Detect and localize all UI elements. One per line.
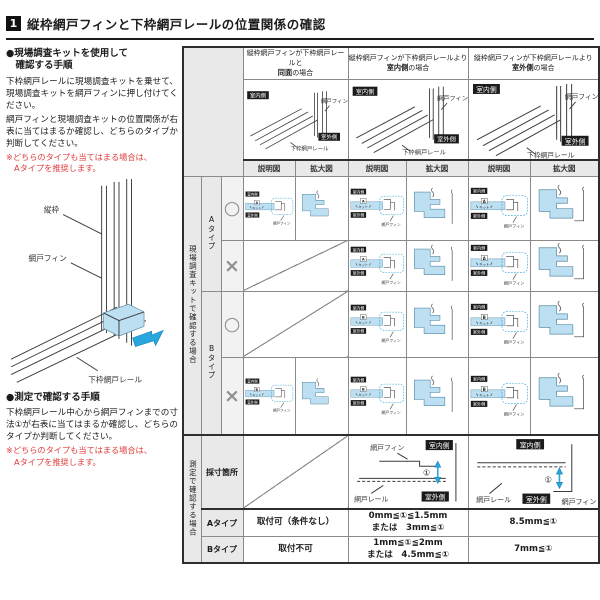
result-row-a-label: Aタイプ: [201, 509, 243, 536]
measure-diagram-outdoor: 室内側 ① 網戸レール 室外側: [468, 435, 599, 509]
kit-check-diagram: 室内側 B キット 室外側 網戸フィン: [469, 302, 530, 347]
focus-dashed-box: [379, 196, 403, 214]
svg-text:室外側: 室外側: [472, 400, 484, 406]
vertical-frame-label: 縦枠: [44, 205, 60, 215]
svg-text:室内側: 室内側: [355, 88, 374, 96]
measure-point-label: 採寸箇所: [201, 435, 243, 509]
svg-text:網戸フィン: 網戸フィン: [503, 222, 524, 228]
kit-note: ※どちらのタイプも当てはまる場合は、 Aタイプを推奨します。: [6, 152, 178, 174]
col-header-indoor: 縦枠網戸フィンが下枠網戸レールより 室内側の場合: [348, 47, 468, 79]
empty-b-ok-flush: [243, 291, 348, 357]
row-group-type-a: Aタイプ: [201, 176, 221, 291]
subheader-enlarge-1: 拡大図: [295, 160, 348, 176]
measure-note: ※どちらのタイプも当てはまる場合は、 Aタイプを推奨します。: [6, 445, 178, 467]
svg-text:網戸フィン: 網戸フィン: [436, 94, 467, 102]
kit-note-line2: Aタイプを推奨します。: [6, 163, 178, 174]
svg-text:網戸フィン: 網戸フィン: [503, 338, 524, 344]
enlarged-section-diagram: [296, 189, 348, 227]
kit-heading-line1: ●現場調査キットを使用して: [6, 48, 178, 60]
svg-text:室内側: 室内側: [472, 188, 484, 194]
push-direction-arrow: [132, 330, 163, 346]
svg-text:室外側: 室外側: [472, 329, 484, 335]
result-b-flush: 取付不可: [243, 536, 348, 563]
svg-text:網戸フィン: 網戸フィン: [381, 280, 400, 285]
svg-text:網戸フィン: 網戸フィン: [381, 338, 400, 343]
kit-check-diagram: 室内側 B キット 室外側 網戸フィン: [469, 374, 530, 419]
focus-dashed-box: [501, 196, 527, 216]
kit-check-diagram: 室内側 B キット 室外側 網戸フィン: [349, 303, 406, 345]
kit-body-1: 下枠網戸レールに現場調査キットを乗せて、現場調査キットを網戸フィンに押し付けてく…: [6, 76, 178, 112]
profile-shape: [302, 194, 328, 216]
kit-heading-line2: 確認する手順: [6, 60, 178, 72]
svg-text:下枠網戸レール: 下枠網戸レール: [290, 144, 329, 152]
kit-check-diagram: 室内側 A キット 室外側 網戸フィン: [244, 190, 295, 228]
focus-dashed-box: [379, 254, 403, 272]
svg-text:室内側: 室内側: [247, 191, 258, 196]
manual-page: 1 縦枠網戸フィンと下枠網戸レールの位置関係の確認 ●現場調査キットを使用して …: [0, 0, 600, 600]
kit-note-line1: ※どちらのタイプも当てはまる場合は、: [6, 152, 152, 162]
profile-shape: [414, 249, 445, 275]
svg-text:室外側: 室外側: [424, 493, 445, 502]
svg-text:網戸フィン: 網戸フィン: [381, 410, 400, 415]
enlarge-a-ng-indoor: [406, 240, 468, 291]
focus-dashed-box: [501, 312, 527, 332]
svg-text:室外側: 室外側: [472, 213, 484, 219]
enlarged-section-diagram: [296, 377, 348, 415]
explain-a-ok-flush: 室内側 A キット 室外側 網戸フィン: [243, 176, 295, 240]
profile-shape: [539, 306, 573, 334]
svg-text:室内側: 室内側: [352, 306, 364, 311]
svg-text:室内側: 室内側: [519, 441, 540, 450]
enlarge-a-ng-outdoor: [530, 240, 599, 291]
kit-check-diagram: 室内側 B キット 室外側 網戸フィン: [349, 375, 406, 417]
svg-text:室外側: 室外側: [352, 329, 364, 334]
subheader-explain-1: 説明図: [243, 160, 295, 176]
focus-dashed-box: [379, 312, 403, 330]
section-number-badge: 1: [6, 16, 21, 31]
measure-note-line1: ※どちらのタイプも当てはまる場合は、: [6, 445, 152, 455]
svg-text:キット: キット: [358, 321, 367, 325]
result-row-b-label: Bタイプ: [201, 536, 243, 563]
svg-text:室内側: 室内側: [472, 245, 484, 251]
svg-text:網戸フィン: 網戸フィン: [503, 410, 524, 416]
svg-text:網戸フィン: 網戸フィン: [561, 497, 596, 506]
kit-usage-diagram: 縦枠 網戸フィン: [9, 178, 175, 390]
svg-text:B: B: [361, 388, 364, 392]
svg-text:キット: キット: [479, 321, 489, 325]
profile-shape: [539, 378, 573, 406]
svg-text:下枠網戸レール: 下枠網戸レール: [527, 150, 575, 159]
empty-a-ng-flush: [243, 240, 348, 291]
svg-text:キット: キット: [479, 393, 489, 397]
ng-mark-b: ×: [221, 357, 243, 435]
svg-text:室内側: 室内側: [472, 304, 484, 310]
measure-body: 下枠網戸レール中心から網戸フィンまでの寸法①が右表に当てはまるか確認し、どちらの…: [6, 407, 178, 443]
svg-text:網戸フィン: 網戸フィン: [273, 408, 291, 413]
svg-text:室外側: 室外側: [247, 400, 258, 405]
profile-shape: [302, 382, 328, 404]
profile-shape: [539, 190, 573, 218]
table-corner-cell: [183, 47, 243, 176]
kit-check-diagram: 室内側 A キット 室外側 網戸フィン: [469, 243, 530, 288]
enlarged-section-diagram: [407, 374, 468, 419]
frame-corner-diagram: 室内側 網戸フィン 室外側 下枠網戸レール: [244, 88, 348, 152]
explain-b-ok-indoor: 室内側 B キット 室外側 網戸フィン: [348, 291, 406, 357]
svg-text:B: B: [482, 386, 485, 391]
svg-text:室外側: 室外側: [352, 213, 364, 218]
svg-text:室内側: 室内側: [472, 375, 484, 381]
section-title-bar: 1 縦枠網戸フィンと下枠網戸レールの位置関係の確認: [6, 14, 594, 40]
svg-text:キット: キット: [252, 205, 261, 209]
focus-dashed-box: [271, 385, 292, 401]
enlarged-section-diagram: [531, 299, 599, 349]
svg-text:網戸レール: 網戸レール: [354, 495, 388, 504]
kit-body-2: 網戸フィンと現場調査キットの位置関係が右表に当てはまるか確認し、どちらのタイプか…: [6, 114, 178, 150]
svg-text:①: ①: [544, 475, 551, 485]
svg-text:室内側: 室内側: [476, 85, 497, 94]
row-group-type-b: Bタイプ: [201, 291, 221, 435]
svg-text:室外側: 室外側: [525, 495, 546, 504]
explain-a-ok-outdoor: 室内側 A キット 室外側 網戸フィン: [468, 176, 530, 240]
svg-text:室内側: 室内側: [428, 441, 449, 450]
explain-b-ng-outdoor: 室内側 B キット 室外側 網戸フィン: [468, 357, 530, 435]
fin-label: 網戸フィン: [29, 253, 68, 263]
enlarged-section-diagram: [531, 183, 599, 233]
enlarge-b-ok-indoor: [406, 291, 468, 357]
enlarge-a-ok-outdoor: [530, 176, 599, 240]
focus-dashed-box: [271, 198, 292, 214]
dimension-arrow: [556, 468, 562, 489]
corner-diagram-outdoor: 室内側 網戸フィン 室外側 下枠網戸レール: [468, 79, 599, 160]
svg-text:室外側: 室外側: [352, 401, 364, 406]
svg-text:キット: キット: [358, 393, 367, 397]
enlarge-b-ng-indoor: [406, 357, 468, 435]
row-group-measure-check: 測定で確認する場合: [183, 435, 201, 563]
svg-text:B: B: [482, 315, 485, 320]
ok-mark-b: ○: [221, 291, 243, 357]
svg-text:①: ①: [423, 468, 430, 477]
subheader-enlarge-2: 拡大図: [406, 160, 468, 176]
dimension-arrow: [434, 461, 440, 483]
enlarge-b-ng-flush: [295, 357, 348, 435]
page-title: 縦枠網戸フィンと下枠網戸レールの位置関係の確認: [27, 14, 326, 33]
svg-text:室外側: 室外側: [564, 136, 585, 145]
frame-corner-diagram: 室内側 網戸フィン 室外側 下枠網戸レール: [469, 80, 599, 160]
explain-b-ng-indoor: 室内側 B キット 室外側 網戸フィン: [348, 357, 406, 435]
explain-a-ng-outdoor: 室内側 A キット 室外側 網戸フィン: [468, 240, 530, 291]
ng-mark-a: ×: [221, 240, 243, 291]
col-header-flush: 縦枠網戸フィンが下枠網戸レールと 同面の場合: [243, 47, 348, 79]
explain-b-ok-outdoor: 室内側 B キット 室外側 網戸フィン: [468, 291, 530, 357]
rail-label: 下枠網戸レール: [88, 374, 142, 384]
content-area: ●現場調査キットを使用して 確認する手順 下枠網戸レールに現場調査キットを乗せて…: [0, 40, 600, 564]
svg-text:網戸レール: 網戸レール: [476, 495, 511, 504]
kit-procedure-heading: ●現場調査キットを使用して 確認する手順: [6, 48, 178, 73]
enlarge-a-ok-indoor: [406, 176, 468, 240]
survey-kit-block: [104, 304, 144, 336]
kit-check-diagram: 室内側 A キット 室外側 網戸フィン: [349, 245, 406, 287]
svg-text:網戸フィン: 網戸フィン: [370, 443, 404, 452]
enlarged-section-diagram: [531, 371, 599, 421]
result-b-indoor: 1mm≦①≦2mm または 4.5mm≦①: [348, 536, 468, 563]
kit-check-diagram: 室内側 A キット 室外側 網戸フィン: [349, 187, 406, 229]
measure-diagram-indoor: 室内側 網戸フィン ① 網戸レール: [348, 435, 468, 509]
enlarge-a-ok-flush: [295, 176, 348, 240]
svg-text:キット: キット: [252, 393, 261, 397]
result-a-flush: 取付可（条件なし）: [243, 509, 348, 536]
svg-text:室外側: 室外側: [247, 212, 258, 217]
svg-text:室内側: 室内側: [352, 377, 364, 382]
svg-text:A: A: [255, 201, 258, 205]
svg-text:室外側: 室外側: [352, 270, 364, 275]
profile-shape: [414, 308, 445, 334]
position-check-table: 縦枠網戸フィンが下枠網戸レールと 同面の場合 縦枠網戸フィンが下枠網戸レールより…: [182, 46, 600, 564]
kit-check-diagram: 室内側 A キット 室外側 網戸フィン: [469, 186, 530, 231]
subheader-explain-3: 説明図: [468, 160, 530, 176]
svg-text:キット: キット: [358, 205, 367, 209]
enlarged-section-diagram: [531, 241, 599, 291]
empty-measure-flush: [243, 435, 348, 509]
explain-b-ng-flush: 室内側 B キット 室外側 網戸フィン: [243, 357, 295, 435]
explain-a-ng-indoor: 室内側 A キット 室外側 網戸フィン: [348, 240, 406, 291]
measure-note-line2: Aタイプを推奨します。: [6, 457, 178, 468]
focus-dashed-box: [501, 253, 527, 273]
ok-mark-a: ○: [221, 176, 243, 240]
svg-text:室内側: 室内側: [352, 190, 364, 195]
profile-shape: [539, 248, 573, 276]
result-a-outdoor: 8.5mm≦①: [468, 509, 599, 536]
row-group-kit-check: 現場調査キットで確認する場合: [183, 176, 201, 435]
kit-check-diagram: 室内側 B キット 室外側 網戸フィン: [244, 377, 295, 415]
svg-text:網戸フィン: 網戸フィン: [381, 222, 400, 227]
focus-dashed-box: [379, 384, 403, 402]
svg-text:キット: キット: [479, 263, 489, 267]
svg-text:室外側: 室外側: [472, 270, 484, 276]
profile-shape: [414, 192, 445, 218]
svg-text:室外側: 室外側: [437, 136, 456, 144]
left-instructions-panel: ●現場調査キットを使用して 確認する手順 下枠網戸レールに現場調査キットを乗せて…: [6, 46, 182, 564]
svg-text:B: B: [361, 316, 364, 320]
enlarged-section-diagram: [407, 186, 468, 231]
svg-text:A: A: [361, 257, 364, 261]
svg-text:キット: キット: [358, 263, 367, 267]
enlarge-b-ng-outdoor: [530, 357, 599, 435]
subheader-explain-2: 説明図: [348, 160, 406, 176]
corner-diagram-flush: 室内側 網戸フィン 室外側 下枠網戸レール: [243, 79, 348, 160]
enlarged-section-diagram: [407, 243, 468, 288]
result-a-indoor: 0mm≦①≦1.5mm または 3mm≦①: [348, 509, 468, 536]
svg-text:網戸フィン: 網戸フィン: [320, 97, 347, 105]
svg-text:網戸フィン: 網戸フィン: [273, 220, 291, 225]
measure-procedure-heading: ●測定で確認する手順: [6, 392, 178, 404]
enlarged-section-diagram: [407, 302, 468, 347]
profile-shape: [414, 380, 445, 406]
focus-dashed-box: [501, 383, 527, 403]
svg-text:A: A: [361, 200, 364, 204]
svg-text:室内側: 室内側: [247, 379, 258, 384]
corner-diagram-indoor: 室内側 網戸フィン 室外側 下枠網戸レール: [348, 79, 468, 160]
result-b-outdoor: 7mm≦①: [468, 536, 599, 563]
explain-a-ok-indoor: 室内側 A キット 室外側 網戸フィン: [348, 176, 406, 240]
subheader-enlarge-3: 拡大図: [530, 160, 599, 176]
svg-text:キット: キット: [479, 205, 489, 209]
svg-text:室内側: 室内側: [352, 247, 364, 252]
svg-text:下枠網戸レール: 下枠網戸レール: [402, 148, 446, 156]
enlarge-b-ok-outdoor: [530, 291, 599, 357]
svg-text:網戸フィン: 網戸フィン: [503, 280, 524, 286]
col-header-outdoor: 縦枠網戸フィンが下枠網戸レールより 室外側の場合: [468, 47, 599, 79]
svg-text:網戸フィン: 網戸フィン: [564, 92, 598, 101]
frame-corner-diagram: 室内側 網戸フィン 室外側 下枠網戸レール: [349, 83, 468, 156]
